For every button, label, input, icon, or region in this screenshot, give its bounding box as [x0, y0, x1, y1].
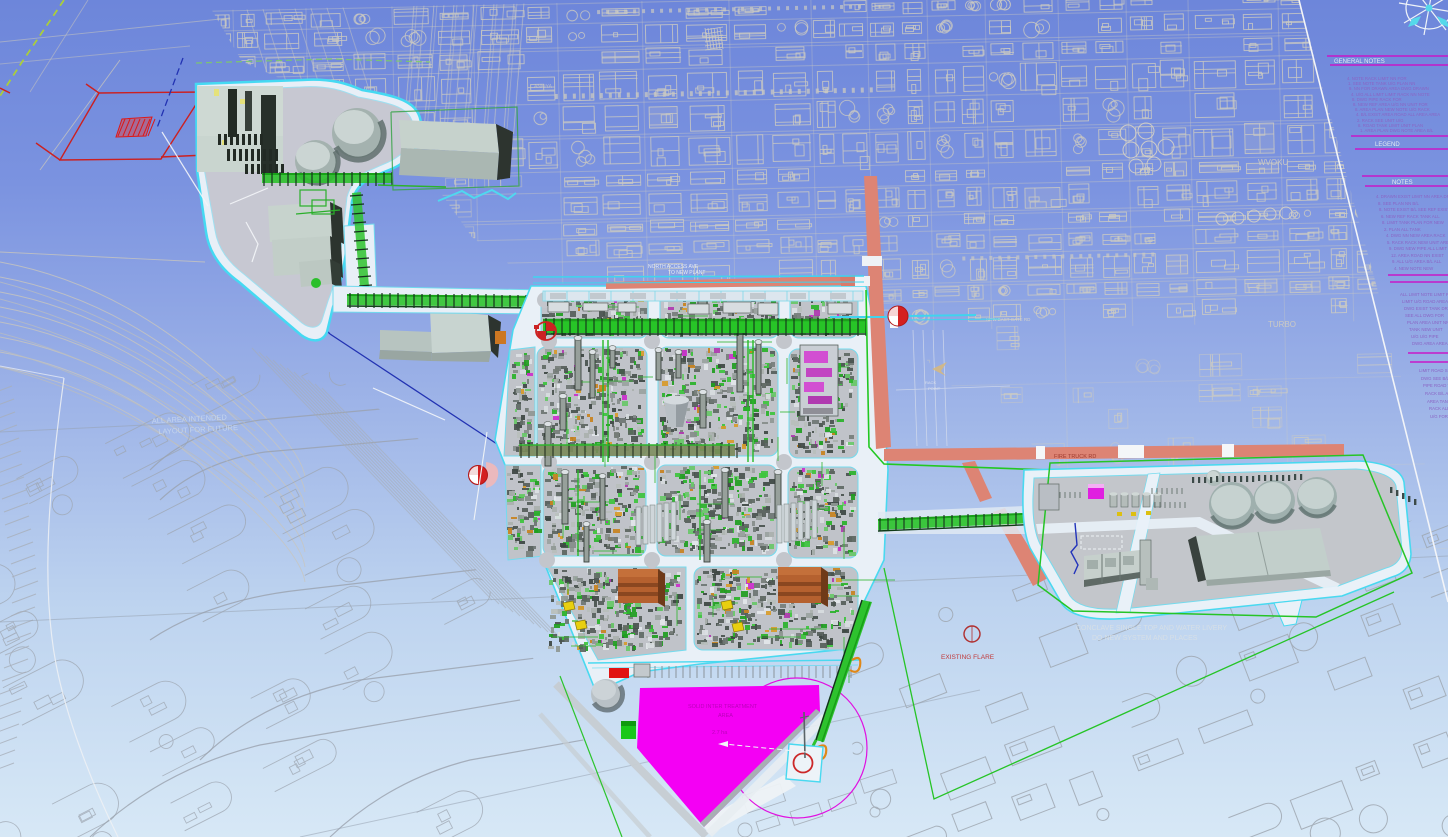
svg-text:AREA TANK PLAN NN: AREA TANK PLAN NN — [1427, 399, 1448, 404]
svg-text:NOTES: NOTES — [1392, 180, 1413, 186]
svg-text:DWG AREA AREA: DWG AREA AREA — [1412, 341, 1448, 346]
svg-text:4. NEW NOTE NEW: 4. NEW NOTE NEW — [1394, 266, 1434, 271]
svg-text:DWG SEE B/L EXIST ROAD: DWG SEE B/L EXIST ROAD — [1421, 376, 1448, 381]
svg-text:6. NEW REF RACK TANK ALL: 6. NEW REF RACK TANK ALL — [1381, 214, 1440, 219]
svg-text:U/G FOR ROAD REF UNIT: U/G FOR ROAD REF UNIT — [1430, 414, 1448, 419]
svg-text:LIMIT U/G ROAD AREA NEW: LIMIT U/G ROAD AREA NEW — [1402, 299, 1448, 304]
svg-text:PLAN AREA UNIT NN: PLAN AREA UNIT NN — [1407, 320, 1448, 325]
svg-text:12. AREA ROAD NN EXIST: 12. AREA ROAD NN EXIST — [1391, 253, 1444, 258]
svg-text:9. ALL U/G AREA B/L ALL: 9. ALL U/G AREA B/L ALL — [1392, 259, 1442, 264]
svg-text:4. B/L EXIST AREA ROAD ALL ARE: 4. B/L EXIST AREA ROAD ALL AREA AREA — [1356, 112, 1440, 117]
svg-text:DWG EXIST TANK DRAWN SEE: DWG EXIST TANK DRAWN SEE — [1404, 306, 1448, 311]
svg-text:5. RACK RACK NEW UNIT AREA NOT: 5. RACK RACK NEW UNIT AREA NOTE — [1387, 240, 1448, 245]
svg-text:GENERAL NOTES: GENERAL NOTES — [1334, 59, 1385, 65]
svg-text:LIMIT ROAD SEE LIMIT: LIMIT ROAD SEE LIMIT — [1419, 368, 1448, 373]
svg-text:8. NOTE EXIST B/L SEE REF EXIS: 8. NOTE EXIST B/L SEE REF EXIST — [1379, 207, 1448, 212]
svg-text:RACK B/L AREA EXIST: RACK B/L AREA EXIST — [1425, 391, 1448, 396]
svg-text:ALL LIMIT NOTE LIMIT RACK: ALL LIMIT NOTE LIMIT RACK — [1400, 292, 1448, 297]
svg-text:4. DWG NN NEW AREA RACK: 4. DWG NN NEW AREA RACK — [1386, 233, 1446, 238]
svg-text:RACK ALL UNIT ALL RACK: RACK ALL UNIT ALL RACK — [1429, 406, 1448, 411]
svg-text:TANK NEW UNIT: TANK NEW UNIT — [1409, 327, 1443, 332]
svg-text:8. SEE PLAN NN B/L: 8. SEE PLAN NN B/L — [1378, 201, 1419, 206]
svg-text:2. PLAN ALL TANK: 2. PLAN ALL TANK — [1384, 227, 1421, 232]
svg-text:ANKIYA: ANKIYA — [534, 84, 553, 90]
svg-text:U/G U/G PIPE: U/G U/G PIPE — [1411, 334, 1439, 339]
svg-text:PIPE ROAD TANK AREA: PIPE ROAD TANK AREA — [1423, 383, 1448, 388]
svg-text:8. LIMIT TANK PLAN FOR NEW: 8. LIMIT TANK PLAN FOR NEW — [1382, 220, 1445, 225]
svg-text:LEGEND: LEGEND — [1375, 142, 1400, 148]
svg-text:SEE ALL DWG FOR: SEE ALL DWG FOR — [1405, 313, 1444, 318]
svg-text:WVOKU: WVOKU — [1258, 158, 1288, 167]
svg-text:9. NN FOR DRAWN AREA DWG DRAWN: 9. NN FOR DRAWN AREA DWG DRAWN — [1349, 86, 1429, 91]
svg-text:9. DWG NEW PIPE ALL LIMIT SEE: 9. DWG NEW PIPE ALL LIMIT SEE — [1389, 246, 1448, 251]
svg-text:TURBO: TURBO — [1268, 320, 1296, 329]
svg-text:4. DRAWN EXIST LIMIT NN AREA D: 4. DRAWN EXIST LIMIT NN AREA DRAWN — [1376, 194, 1448, 199]
svg-text:1. AREA PLAN DWG NOTE AREA B/L: 1. AREA PLAN DWG NOTE AREA B/L — [1360, 128, 1434, 133]
